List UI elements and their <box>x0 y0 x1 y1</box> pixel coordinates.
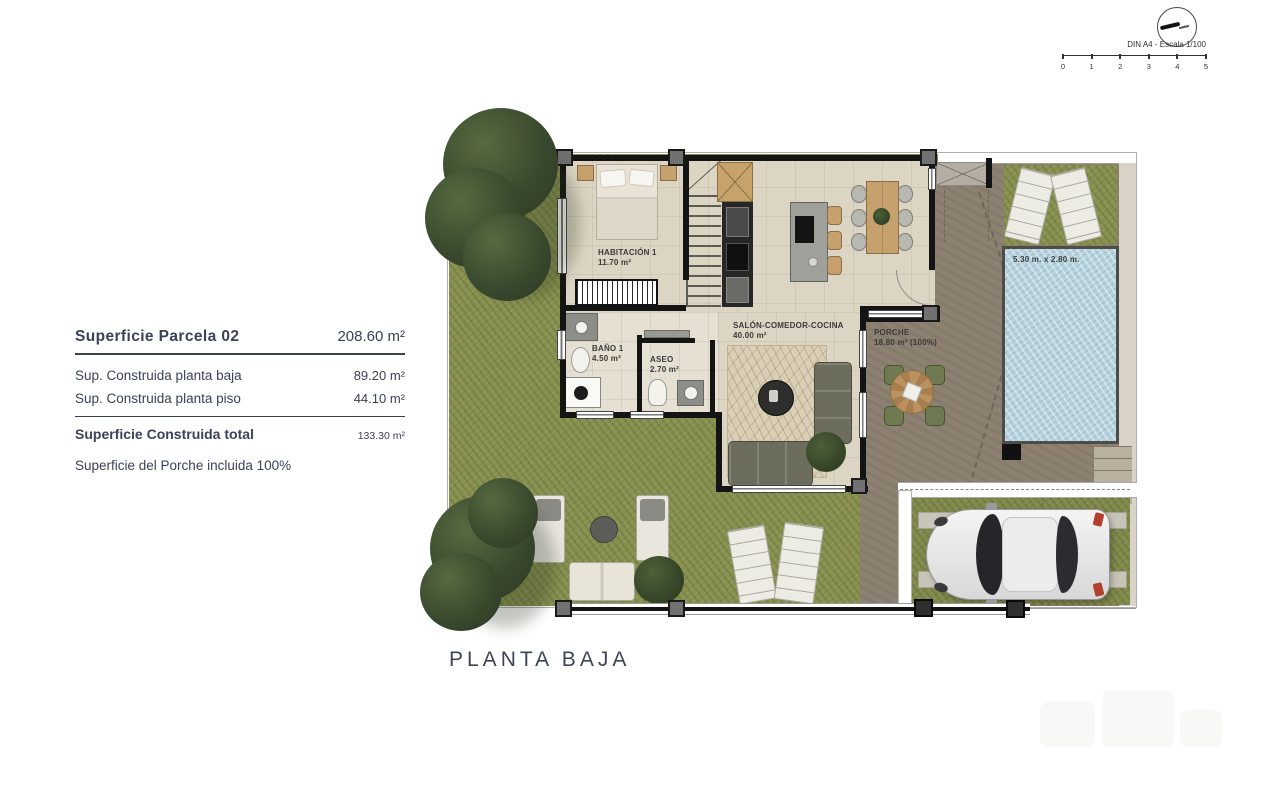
driveway-entrance-line <box>1030 608 1136 609</box>
wall-post <box>920 149 937 166</box>
tree <box>420 468 555 633</box>
drain-icon <box>574 386 588 400</box>
plant <box>806 432 846 472</box>
coffee-table <box>758 380 794 416</box>
plan-title: PLANTA BAJA <box>449 648 630 672</box>
wall-post <box>922 305 939 322</box>
tree-canopy <box>468 478 538 548</box>
window <box>859 392 867 438</box>
shower-tray <box>564 377 601 408</box>
scale-number: 3 <box>1147 62 1151 71</box>
sofa <box>728 441 813 486</box>
pool-corner-post <box>1002 444 1021 460</box>
room-name: HABITACIÓN 1 <box>598 248 657 258</box>
window <box>630 411 664 419</box>
bed-blanket <box>597 199 657 239</box>
scale-number: 2 <box>1118 62 1122 71</box>
wall <box>716 412 722 492</box>
watermark-shape <box>1180 710 1222 747</box>
room-name: PORCHE <box>874 328 937 338</box>
room-label-porche: PORCHE 18.80 m² (100%) <box>874 328 937 348</box>
pergola-pad <box>936 162 990 186</box>
room-name: BAÑO 1 <box>592 344 623 354</box>
dashed-projection-line <box>988 190 989 242</box>
kitchen-units <box>722 202 753 307</box>
room-name: ASEO <box>650 355 679 365</box>
car-windshield <box>976 514 1004 595</box>
armchair-cushion <box>640 499 665 521</box>
toilet <box>648 379 667 406</box>
coffee-table-tray <box>769 390 778 402</box>
window <box>576 411 614 419</box>
panel-row-label: Sup. Construida planta baja <box>75 368 242 383</box>
wall <box>683 158 689 280</box>
room-area: 11.70 m² <box>598 258 657 268</box>
scale-caption: DIN A4 - Escala 1/100 <box>1063 40 1206 49</box>
dining-chair <box>851 233 867 251</box>
scale-tick <box>1176 54 1178 59</box>
kitchen-island <box>790 202 828 282</box>
watermark <box>1040 690 1225 765</box>
scale-tick <box>1062 54 1064 59</box>
kitchen-appliance <box>726 243 749 271</box>
bush <box>634 556 684 604</box>
table-plant <box>873 208 890 225</box>
dining-chair <box>897 185 913 203</box>
window <box>859 330 867 368</box>
basin-bowl <box>684 386 698 400</box>
bath-shelf <box>644 330 690 338</box>
bar-stool <box>827 231 842 250</box>
window <box>732 485 846 493</box>
info-panel: Superficie Parcela 02 208.60 m² Sup. Con… <box>75 328 405 473</box>
compass-needle-icon <box>1160 22 1180 30</box>
stairs <box>688 195 721 307</box>
bed <box>596 164 658 240</box>
patio-chair <box>925 406 945 426</box>
driveway-edge-strip <box>898 482 1137 498</box>
scale-number: 4 <box>1175 62 1179 71</box>
wall-post <box>851 478 867 494</box>
car <box>926 505 1112 604</box>
floor-plan-page: DIN A4 - Escala 1/100 0 1 2 3 4 5 Superf… <box>0 0 1280 800</box>
dashed-projection-line <box>944 190 945 242</box>
fence-post <box>914 599 933 617</box>
pillow <box>628 169 655 188</box>
sink <box>808 257 818 267</box>
nightstand <box>577 165 594 181</box>
panel-row-value: 44.10 m² <box>354 391 405 406</box>
scale-bar: 0 1 2 3 4 5 <box>1063 55 1206 56</box>
fence-post <box>668 600 685 617</box>
car-mirror <box>986 503 997 510</box>
panel-row: Sup. Construida planta piso 44.10 m² <box>75 391 405 417</box>
bar-stool <box>827 256 842 275</box>
fence-post <box>555 600 572 617</box>
sofa <box>814 362 852 444</box>
scale-number: 5 <box>1204 62 1208 71</box>
wall <box>560 305 686 311</box>
wall <box>637 335 642 412</box>
wall <box>560 155 937 161</box>
panel-row-label: Sup. Construida planta piso <box>75 391 241 406</box>
washbasin <box>677 380 704 406</box>
room-label-habitacion: HABITACIÓN 1 11.70 m² <box>598 248 657 268</box>
bar-stool <box>827 206 842 225</box>
driveway-side-strip <box>898 490 912 606</box>
kitchen-appliance <box>726 277 749 303</box>
nightstand <box>660 165 677 181</box>
scale-tick <box>1091 54 1093 59</box>
tree <box>425 108 575 313</box>
tree-canopy <box>420 553 502 631</box>
scale-tick <box>1119 54 1121 59</box>
car-roof <box>1002 517 1058 592</box>
wall <box>710 340 715 412</box>
window <box>557 330 566 360</box>
watermark-shape <box>1102 690 1174 747</box>
dining-chair <box>897 209 913 227</box>
wall <box>640 338 695 343</box>
swimming-pool: 5.30 m. x 2.80 m. <box>1002 246 1119 444</box>
wardrobe <box>575 279 658 306</box>
scale-number: 0 <box>1061 62 1065 71</box>
garden-sofa <box>569 562 635 601</box>
room-name: SALÓN-COMEDOR-COCINA <box>733 321 844 331</box>
dining-chair <box>851 185 867 203</box>
panel-title: Superficie Parcela 02 <box>75 328 239 346</box>
stair-landing <box>717 162 753 202</box>
garden-table <box>590 516 618 543</box>
room-label-aseo: ASEO 2.70 m² <box>650 355 679 375</box>
panel-total-value: 133.30 m² <box>358 430 405 442</box>
scale-number: 1 <box>1090 62 1094 71</box>
room-area: 18.80 m² (100%) <box>874 338 937 348</box>
panel-title-row: Superficie Parcela 02 208.60 m² <box>75 328 405 355</box>
room-label-salon: SALÓN-COMEDOR-COCINA 40.00 m² <box>733 321 844 341</box>
garden-armchair <box>636 495 669 561</box>
kitchen-appliance <box>726 207 749 237</box>
wall <box>560 312 566 418</box>
window <box>868 310 924 318</box>
shower <box>565 313 598 341</box>
panel-total-row: Superficie Construida total 133.30 m² <box>75 426 405 442</box>
fence-rail <box>560 607 1030 611</box>
room-area: 4.50 m² <box>592 354 623 364</box>
tree-canopy <box>463 213 551 301</box>
wall-post <box>668 149 685 166</box>
panel-total-label: Superficie Construida total <box>75 426 254 442</box>
dashed-boundary-line <box>900 489 1130 490</box>
wall <box>986 158 992 188</box>
shower-drain <box>575 321 588 334</box>
cooktop <box>795 216 814 243</box>
panel-note: Superficie del Porche incluida 100% <box>75 458 405 473</box>
panel-row: Sup. Construida planta baja 89.20 m² <box>75 368 405 383</box>
dining-chair <box>897 233 913 251</box>
pillow <box>599 169 626 188</box>
scale-tick <box>1205 54 1207 59</box>
window <box>928 168 936 190</box>
watermark-shape <box>1040 702 1095 747</box>
dining-chair <box>851 209 867 227</box>
room-label-bano: BAÑO 1 4.50 m² <box>592 344 623 364</box>
room-area: 2.70 m² <box>650 365 679 375</box>
fence-post <box>1006 600 1025 618</box>
panel-title-value: 208.60 m² <box>337 328 405 345</box>
scale-tick <box>1148 54 1150 59</box>
panel-row-value: 89.20 m² <box>354 368 405 383</box>
pool-dimensions-label: 5.30 m. x 2.80 m. <box>1013 255 1080 265</box>
room-area: 40.00 m² <box>733 331 844 341</box>
compass-needle-tail-icon <box>1179 25 1189 29</box>
toilet <box>571 347 590 373</box>
